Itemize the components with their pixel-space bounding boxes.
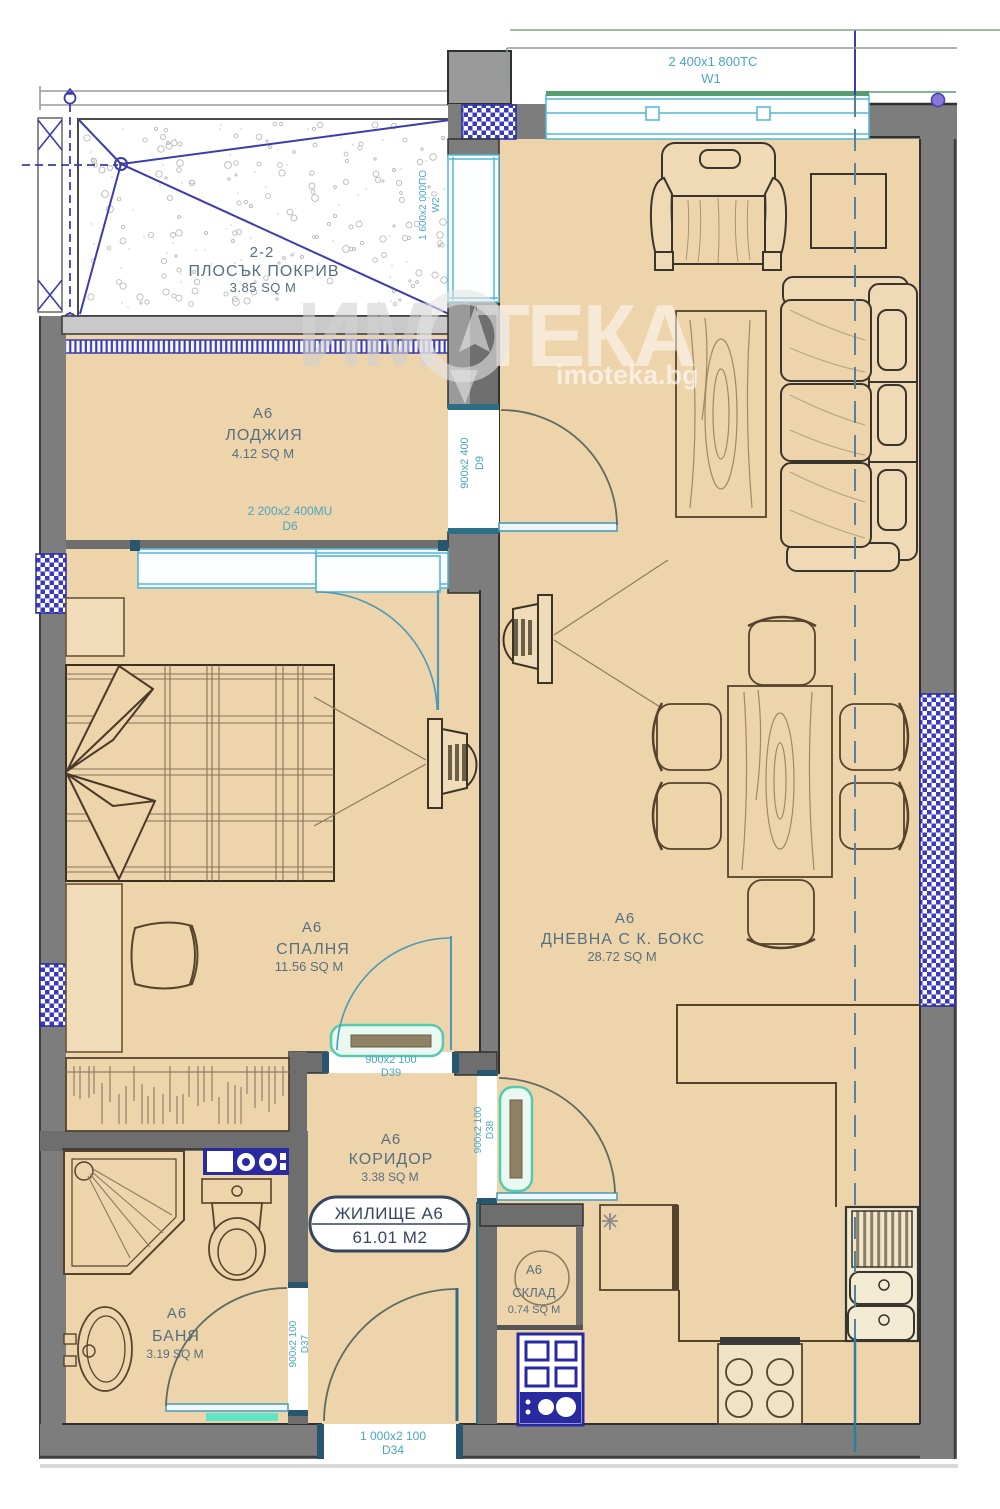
svg-text:900x2 400: 900x2 400 <box>459 437 471 488</box>
svg-text:W1: W1 <box>701 71 721 86</box>
svg-text:1 000x2 100: 1 000x2 100 <box>360 1429 426 1443</box>
svg-text:28.72 SQ M: 28.72 SQ M <box>587 949 656 964</box>
svg-text:1 600x2 000ПО: 1 600x2 000ПО <box>418 170 429 240</box>
svg-text:ЛОДЖИЯ: ЛОДЖИЯ <box>225 427 302 444</box>
svg-text:11.56 SQ M: 11.56 SQ M <box>275 959 343 974</box>
svg-text:А6: А6 <box>381 1131 401 1148</box>
svg-text:3.19 SQ M: 3.19 SQ M <box>146 1347 203 1361</box>
svg-text:ЖИЛИЩЕ А6: ЖИЛИЩЕ А6 <box>335 1204 444 1223</box>
svg-text:4.12 SQ M: 4.12 SQ M <box>232 446 294 461</box>
svg-text:СКЛАД: СКЛАД <box>512 1285 556 1300</box>
svg-text:D37: D37 <box>300 1334 311 1353</box>
svg-text:D39: D39 <box>381 1067 401 1079</box>
svg-text:0.74 SQ M: 0.74 SQ M <box>508 1304 561 1316</box>
svg-text:D38: D38 <box>485 1120 496 1139</box>
svg-text:D34: D34 <box>382 1443 404 1457</box>
svg-text:А6: А6 <box>526 1262 542 1277</box>
svg-text:А6: А6 <box>302 919 322 936</box>
svg-text:СПАЛНЯ: СПАЛНЯ <box>276 941 350 958</box>
svg-text:А6: А6 <box>167 1305 187 1322</box>
svg-text:W2: W2 <box>431 197 442 212</box>
svg-text:imoteka.bg: imoteka.bg <box>556 360 699 390</box>
svg-text:900x2 100: 900x2 100 <box>473 1106 484 1153</box>
svg-text:61.01 М2: 61.01 М2 <box>353 1228 428 1247</box>
svg-text:А6: А6 <box>615 910 635 927</box>
svg-text:БАНЯ: БАНЯ <box>152 1328 200 1345</box>
svg-text:ИМ: ИМ <box>297 284 436 386</box>
svg-text:А6: А6 <box>253 405 273 422</box>
svg-text:ПЛОСЪК ПОКРИВ: ПЛОСЪК ПОКРИВ <box>189 263 340 280</box>
svg-text:ДНЕВНА С К. БОКС: ДНЕВНА С К. БОКС <box>541 931 705 948</box>
svg-text:900x2 100: 900x2 100 <box>288 1320 299 1367</box>
svg-text:2 200x2 400MU: 2 200x2 400MU <box>248 504 333 518</box>
svg-text:2 400x1 800TC: 2 400x1 800TC <box>669 54 758 69</box>
svg-text:КОРИДОР: КОРИДОР <box>349 1151 434 1168</box>
svg-text:2-2: 2-2 <box>250 244 275 261</box>
svg-text:3.85 SQ M: 3.85 SQ M <box>230 280 297 295</box>
svg-text:D9: D9 <box>474 456 486 470</box>
svg-text:900x2 100: 900x2 100 <box>365 1054 416 1066</box>
svg-text:D6: D6 <box>282 519 298 533</box>
svg-text:3.38 SQ M: 3.38 SQ M <box>361 1170 418 1184</box>
